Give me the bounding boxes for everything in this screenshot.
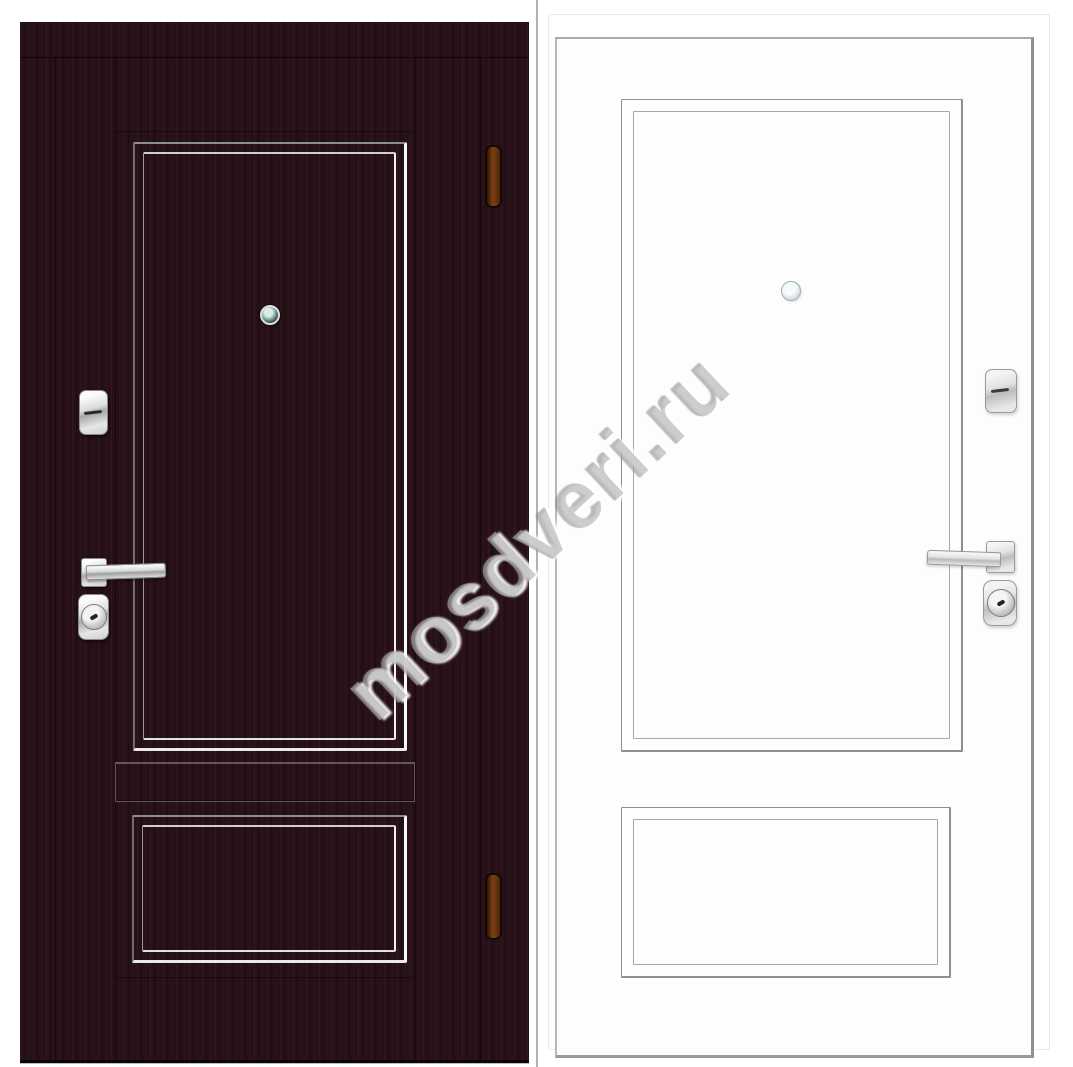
header-rail-seam [115,131,415,132]
photo-divider [536,0,538,1067]
main-panel-molding [621,99,963,752]
keyhole [90,613,99,620]
casing-seam-right [480,57,481,1060]
back-door-white [555,37,1034,1058]
front-door-dark [20,22,529,1063]
deadbolt-keyhole-slot [84,410,102,415]
lock-cylinder [987,589,1015,617]
hinge-top [485,145,502,208]
casing-seam-top [20,57,529,58]
deadbolt-escutcheon [985,369,1017,413]
bottom-rail-seam [115,977,415,978]
cylinder-escutcheon [78,594,109,640]
main-panel-molding [133,142,407,751]
lever-handle [86,563,166,581]
main-panel-inner-molding [633,111,950,739]
lever-handle [927,550,1001,568]
stile-seam-right [415,57,416,1060]
stile-seam-left [115,57,116,1060]
lower-panel-molding [132,815,407,963]
cylinder-escutcheon [983,580,1017,626]
peephole [781,281,801,301]
lower-panel-inner-molding [633,819,938,965]
door-product-photo: mosdveri.ru [0,0,1073,1067]
deadbolt-keyhole-slot [991,388,1009,393]
keyhole [997,599,1006,606]
main-panel-inner-molding [143,152,396,740]
middle-rail [115,762,415,802]
casing-seam-left [55,57,56,1060]
hinge-bottom [485,873,502,940]
deadbolt-escutcheon [79,390,108,435]
peephole [260,305,280,325]
lower-panel-inner-molding [142,825,396,952]
lock-cylinder [81,604,107,630]
lower-panel-molding [621,807,951,978]
